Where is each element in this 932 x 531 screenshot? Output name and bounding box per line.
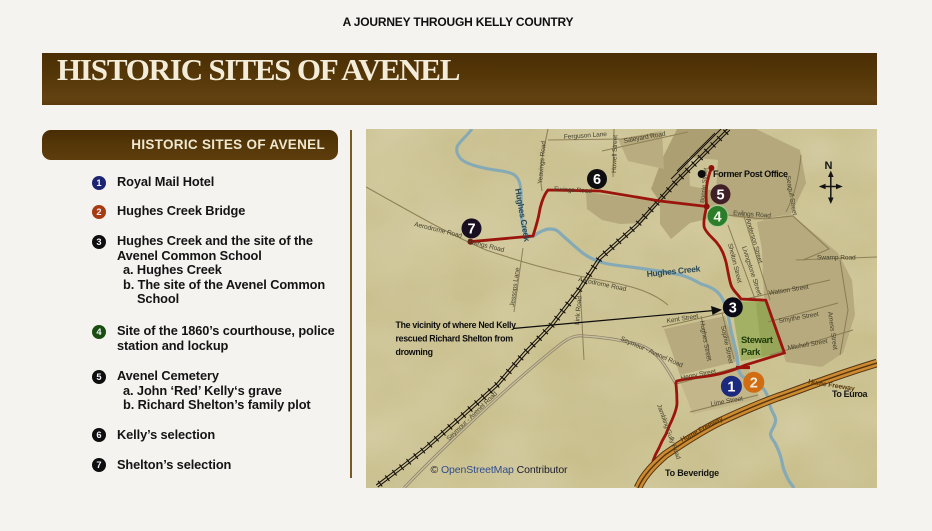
svg-text:Stewart: Stewart — [741, 335, 774, 346]
svg-text:1: 1 — [727, 380, 735, 396]
svg-text:5: 5 — [716, 187, 724, 203]
svg-text:4: 4 — [713, 209, 721, 225]
svg-text:To Euroa: To Euroa — [832, 389, 869, 399]
svg-text:N: N — [825, 160, 833, 172]
svg-text:To Beveridge: To Beveridge — [665, 468, 719, 478]
svg-text:Swamp Road: Swamp Road — [817, 255, 856, 262]
svg-text:Park: Park — [741, 347, 761, 358]
svg-text:The vicinity of where Ned Kell: The vicinity of where Ned Kelly — [396, 320, 517, 330]
svg-text:rescued Richard Shelton from: rescued Richard Shelton from — [396, 334, 514, 344]
svg-text:6: 6 — [593, 172, 601, 188]
svg-text:7: 7 — [467, 222, 475, 238]
svg-text:drowning: drowning — [396, 347, 433, 357]
svg-text:© OpenStreetMap Contributor: © OpenStreetMap Contributor — [431, 464, 569, 476]
svg-text:2: 2 — [750, 376, 758, 392]
svg-text:Howell Street: Howell Street — [611, 135, 619, 173]
svg-text:Former Post Office: Former Post Office — [713, 169, 788, 179]
svg-text:3: 3 — [729, 300, 737, 316]
